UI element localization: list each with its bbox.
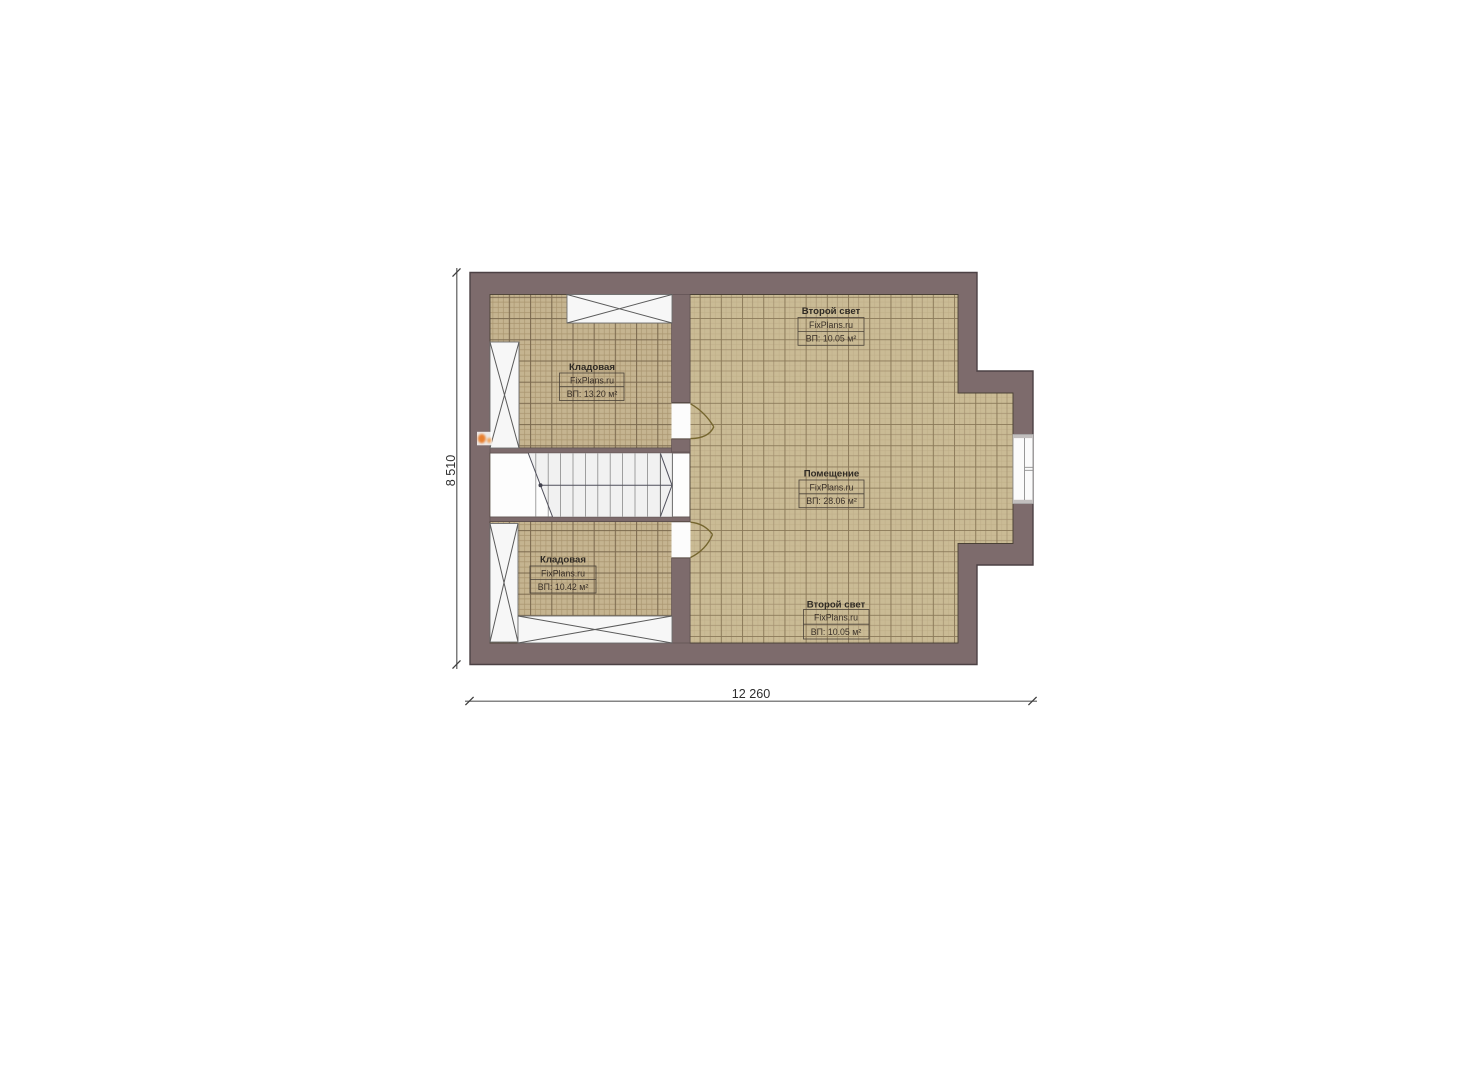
- svg-text:FixPlans.ru: FixPlans.ru: [541, 568, 585, 578]
- svg-text:Второй свет: Второй свет: [802, 306, 861, 317]
- svg-text:Второй свет: Второй свет: [807, 599, 866, 610]
- svg-text:ВП: 10.42 м²: ВП: 10.42 м²: [538, 582, 589, 592]
- svg-text:FixPlans.ru: FixPlans.ru: [810, 482, 854, 492]
- svg-text:ВП: 10.05 м²: ВП: 10.05 м²: [806, 334, 857, 344]
- svg-text:ВП: 28.06 м²: ВП: 28.06 м²: [806, 496, 857, 506]
- svg-text:FixPlans.ru: FixPlans.ru: [570, 376, 614, 386]
- svg-text:ВП: 10.05 м²: ВП: 10.05 м²: [811, 627, 862, 637]
- svg-text:FixPlans.ru: FixPlans.ru: [809, 320, 853, 330]
- svg-text:ВП: 13.20 м²: ВП: 13.20 м²: [567, 389, 618, 399]
- svg-text:Кладовая: Кладовая: [569, 362, 615, 373]
- svg-text:12 260: 12 260: [732, 687, 771, 701]
- svg-text:Помещение: Помещение: [804, 468, 860, 479]
- svg-text:8 510: 8 510: [444, 455, 458, 487]
- svg-text:Кладовая: Кладовая: [540, 555, 586, 566]
- svg-text:FixPlans.ru: FixPlans.ru: [814, 613, 858, 623]
